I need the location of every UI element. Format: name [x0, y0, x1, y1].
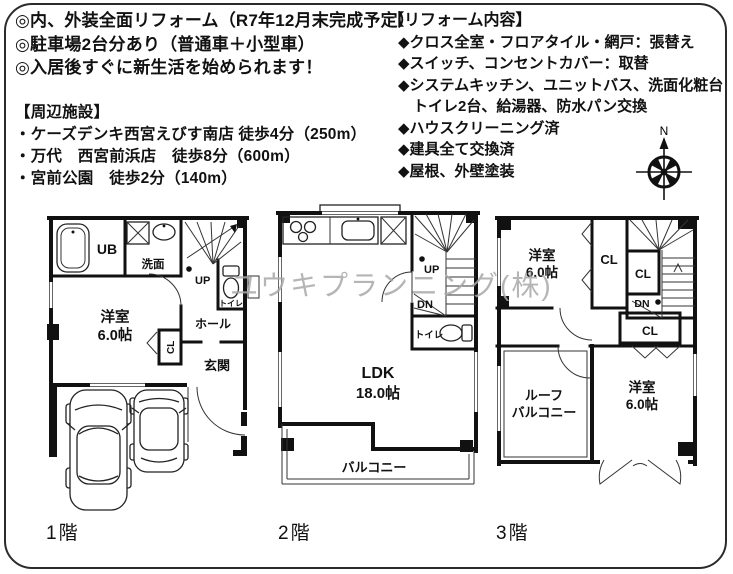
room-label-ub: UB — [97, 241, 117, 257]
room-label-roof-balcony-2: バルコニー — [512, 405, 577, 420]
stairs-up-label: UP — [195, 275, 210, 287]
highlight-line: ◎内、外装全面リフォーム（R7年12月末完成予定） — [15, 9, 415, 33]
reform-item: ◆システムキッチン、ユニットバス、洗面化粧台 — [388, 75, 723, 97]
reform-item: ◆スイッチ、コンセントカバー：取替 — [388, 53, 723, 75]
compass-icon: N — [634, 122, 698, 204]
room-size-bedroom2: 6.0帖 — [626, 396, 659, 412]
floorplan-2f: UP DN トイレ LDK 18.0帖 バルコニー — [272, 202, 484, 492]
floorplan-1f: UB 洗面 UP トイレ 洋室 6.0帖 ホール CL 玄関 — [35, 212, 260, 557]
flyer: ◎内、外装全面リフォーム（R7年12月末完成予定） ◎駐車場2台分あり（普通車＋… — [0, 0, 733, 574]
floorplan-3f: 洋室 6.0帖 CL CL DN CL ルーフ バルコニー 洋室 6.0帖 — [492, 206, 704, 496]
facilities-block: 【周辺施設】 ・ケーズデンキ西宮えびす南店 徒歩4分（250m） ・万代 西宮前… — [15, 102, 366, 190]
room-label-closet: CL — [166, 341, 177, 354]
floor-label-2f: 2階 — [278, 518, 312, 545]
room-label-ldk: LDK — [362, 365, 395, 382]
reform-title: 【リフォーム内容】 — [388, 10, 723, 32]
room-label-closet2: CL — [635, 267, 651, 281]
room-label-hall: ホール — [195, 317, 231, 331]
stairs-down-label: DN — [634, 298, 649, 310]
room-size-bedroom: 6.0帖 — [98, 326, 133, 344]
room-label-bedroom2: 洋室 — [629, 379, 657, 395]
facilities-title: 【周辺施設】 — [15, 102, 366, 124]
room-label-entrance: 玄関 — [204, 358, 230, 373]
facility-item: ・宮前公園 徒歩2分（140m） — [15, 168, 366, 190]
room-label-closet3: CL — [642, 324, 658, 338]
reform-item: ◆クロス全室・フロアタイル・網戸：張替え — [388, 32, 723, 54]
room-label-washroom: 洗面 — [142, 257, 165, 271]
room-size-ldk: 18.0帖 — [356, 384, 400, 402]
highlights-block: ◎内、外装全面リフォーム（R7年12月末完成予定） ◎駐車場2台分あり（普通車＋… — [15, 9, 415, 80]
room-label-roof-balcony-1: ルーフ — [525, 388, 563, 403]
room-label-bedroom1: 洋室 — [529, 247, 557, 263]
reform-item: トイレ2台、給湯器、防水パン交換 — [388, 96, 723, 118]
room-label-toilet: トイレ — [415, 330, 444, 341]
room-label-balcony: バルコニー — [342, 460, 407, 475]
room-label-bedroom: 洋室 — [101, 308, 130, 326]
highlight-line: ◎入居後すぐに新生活を始められます！ — [15, 56, 415, 80]
facility-item: ・万代 西宮前浜店 徒歩8分（600m） — [15, 146, 366, 168]
room-label-closet1: CL — [600, 252, 617, 267]
facility-item: ・ケーズデンキ西宮えびす南店 徒歩4分（250m） — [15, 124, 366, 146]
floor-label-3f: 3階 — [496, 518, 530, 545]
watermark: ユウキプランニング(株) — [230, 264, 553, 304]
highlight-line: ◎駐車場2台分あり（普通車＋小型車） — [15, 33, 415, 57]
compass-north-label: N — [660, 124, 669, 138]
